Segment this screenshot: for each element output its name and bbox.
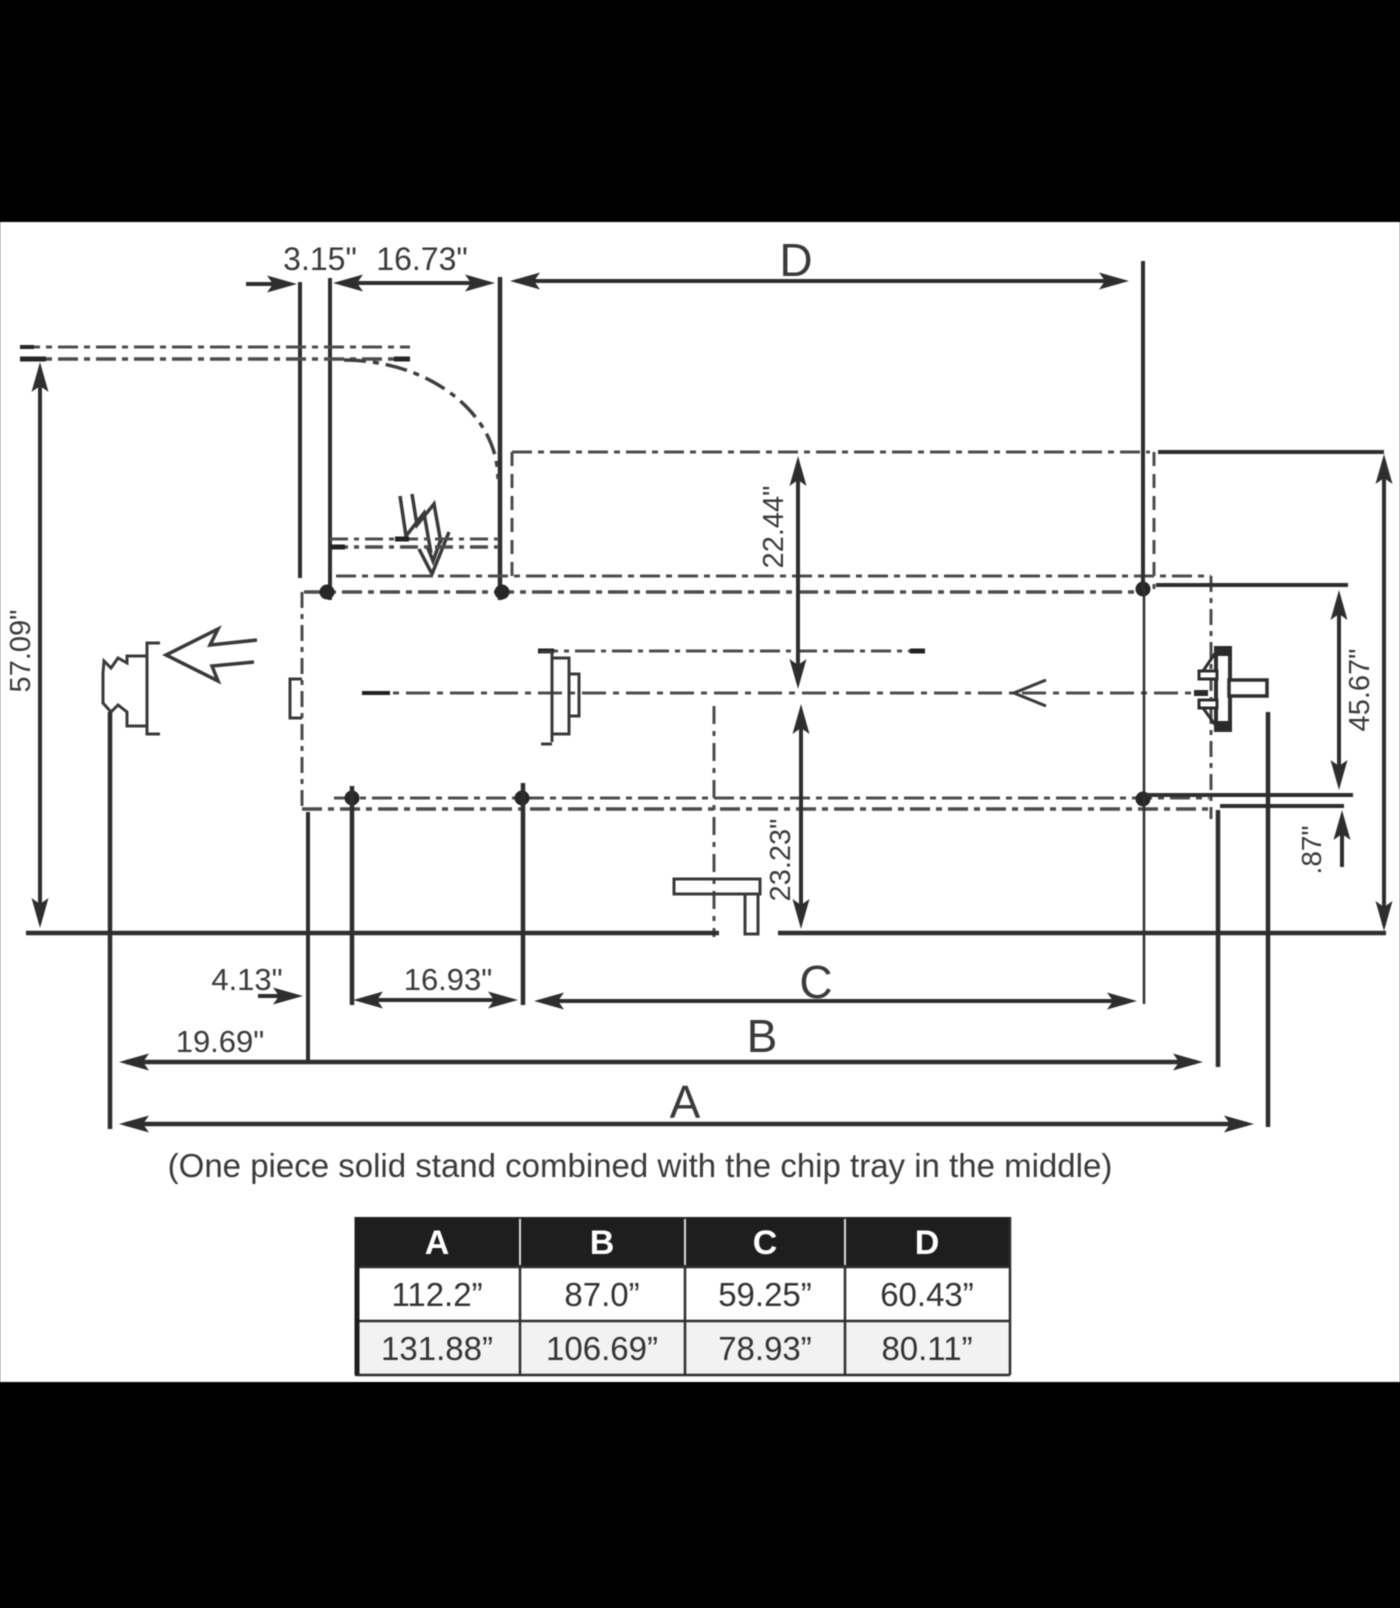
svg-text:C: C (799, 956, 832, 1008)
svg-text:60.43”: 60.43” (880, 1276, 974, 1313)
svg-text:D: D (915, 1224, 940, 1262)
svg-text:B: B (747, 1010, 778, 1062)
svg-text:B: B (590, 1224, 615, 1262)
svg-text:57.09": 57.09" (5, 610, 37, 693)
svg-text:131.88”: 131.88” (381, 1330, 493, 1367)
svg-text:112.2”: 112.2” (391, 1276, 482, 1313)
svg-text:87.0”: 87.0” (564, 1276, 639, 1313)
svg-text:22.44": 22.44" (758, 486, 790, 569)
svg-text:C: C (753, 1224, 778, 1262)
svg-text:23.23": 23.23" (765, 819, 797, 902)
svg-text:A: A (425, 1224, 450, 1262)
svg-text:45.67": 45.67" (1344, 649, 1376, 732)
svg-text:16.73": 16.73" (376, 241, 467, 277)
svg-text:59.25”: 59.25” (718, 1276, 812, 1313)
svg-text:106.69”: 106.69” (546, 1330, 658, 1367)
svg-text:4.13": 4.13" (211, 962, 282, 997)
svg-text:D: D (779, 234, 812, 286)
svg-text:19.69": 19.69" (176, 1024, 265, 1059)
svg-text:3.15": 3.15" (283, 241, 357, 277)
svg-text:A: A (670, 1076, 701, 1128)
svg-text:16.93": 16.93" (404, 962, 493, 997)
svg-text:80.11”: 80.11” (881, 1330, 972, 1367)
svg-text:(One piece solid stand combine: (One piece solid stand combined with the… (168, 1147, 1113, 1184)
svg-text:78.93”: 78.93” (718, 1330, 812, 1367)
svg-text:.87": .87" (1296, 826, 1327, 875)
